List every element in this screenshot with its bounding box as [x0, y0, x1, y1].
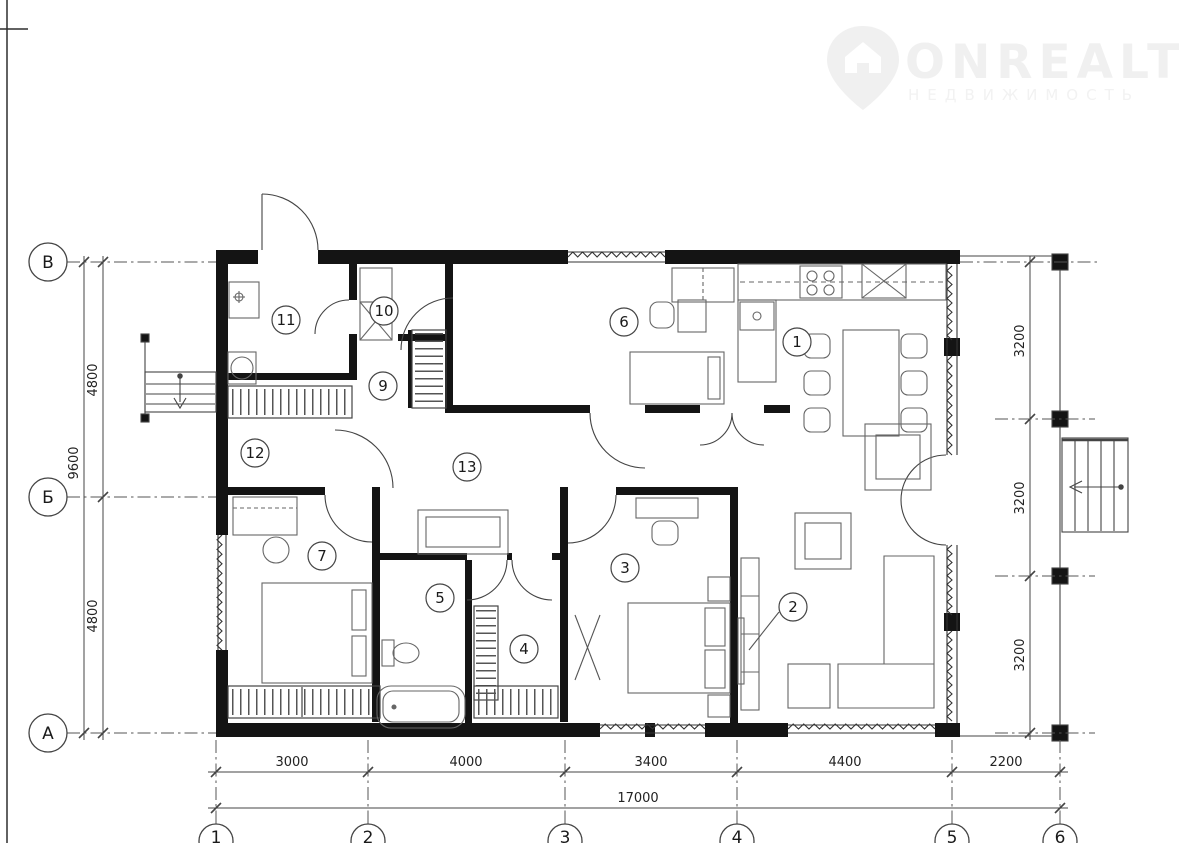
page-border-lines	[0, 0, 28, 843]
dim-2200: 2200	[989, 755, 1022, 770]
watermark-brand: ONREALT	[905, 35, 1185, 90]
glazing-right-2	[947, 356, 952, 455]
room-label-13: 13	[457, 458, 476, 476]
terrace-door-arc-top	[901, 455, 946, 500]
window-top-room6	[568, 252, 665, 257]
door-room6-arc	[590, 413, 645, 468]
axis-col-4: 4	[732, 828, 743, 843]
axis-markers: В Б А 1 2 3 4 5 6	[29, 243, 1077, 843]
room-label-10: 10	[374, 302, 393, 320]
room-label-3: 3	[620, 559, 630, 577]
door-room5-arc	[467, 560, 507, 600]
dim-3200-bottom: 3200	[1013, 638, 1028, 671]
axis-row-v: В	[42, 253, 54, 273]
door-room3-arc	[568, 495, 616, 543]
location-pin-icon	[827, 26, 899, 110]
axis-row-b: Б	[42, 488, 54, 508]
room-label-1: 1	[792, 333, 802, 351]
dim-3400: 3400	[634, 755, 667, 770]
entry-door-arc	[262, 194, 318, 250]
dim-4800-top: 4800	[86, 363, 101, 396]
dim-3000: 3000	[275, 755, 308, 770]
dim-4400: 4400	[828, 755, 861, 770]
glazing-right-4	[947, 631, 952, 721]
watermark-logo: ONREALT НЕДВИЖИМОСТЬ	[827, 26, 1185, 110]
room-label-4: 4	[519, 640, 529, 658]
glazing-right-1	[947, 266, 952, 340]
furniture	[228, 264, 946, 728]
floor-plan-page: ONREALT НЕДВИЖИМОСТЬ	[0, 0, 1200, 843]
door-hall12-arc	[335, 430, 393, 488]
axis-row-a: А	[42, 724, 54, 744]
room-label-12: 12	[245, 444, 264, 462]
room-label-6: 6	[619, 313, 629, 331]
right-terrace	[960, 254, 1128, 741]
room-label-2: 2	[788, 598, 798, 616]
door-room7-arc	[325, 495, 372, 542]
watermark-subtitle: НЕДВИЖИМОСТЬ	[908, 86, 1140, 104]
left-porch	[141, 334, 216, 422]
door-room4-arc	[512, 560, 552, 600]
axis-col-3: 3	[560, 828, 571, 843]
dim-3200-middle: 3200	[1013, 481, 1028, 514]
windows	[217, 252, 957, 733]
room-label-9: 9	[378, 377, 388, 395]
dim-4000: 4000	[449, 755, 482, 770]
door-room10-arc	[315, 300, 349, 334]
dim-3200-top: 3200	[1013, 324, 1028, 357]
interior-walls	[228, 264, 960, 737]
door-kitchen-right-arc	[732, 413, 764, 445]
dim-4800-bottom: 4800	[86, 599, 101, 632]
axis-col-2: 2	[363, 828, 374, 843]
terrace-door-arc-bottom	[901, 500, 946, 545]
axis-col-6: 6	[1055, 828, 1066, 843]
dim-17000: 17000	[617, 791, 658, 806]
room-label-11: 11	[276, 311, 295, 329]
door-kitchen-left-arc	[700, 413, 732, 445]
room-label-5: 5	[435, 589, 445, 607]
dim-9600: 9600	[67, 446, 82, 479]
axis-col-1: 1	[211, 828, 222, 843]
room-label-7: 7	[317, 547, 327, 565]
floor-plan-drawing: ONREALT НЕДВИЖИМОСТЬ	[0, 0, 1200, 843]
axis-col-5: 5	[947, 828, 958, 843]
glazing-right-3	[947, 545, 952, 615]
